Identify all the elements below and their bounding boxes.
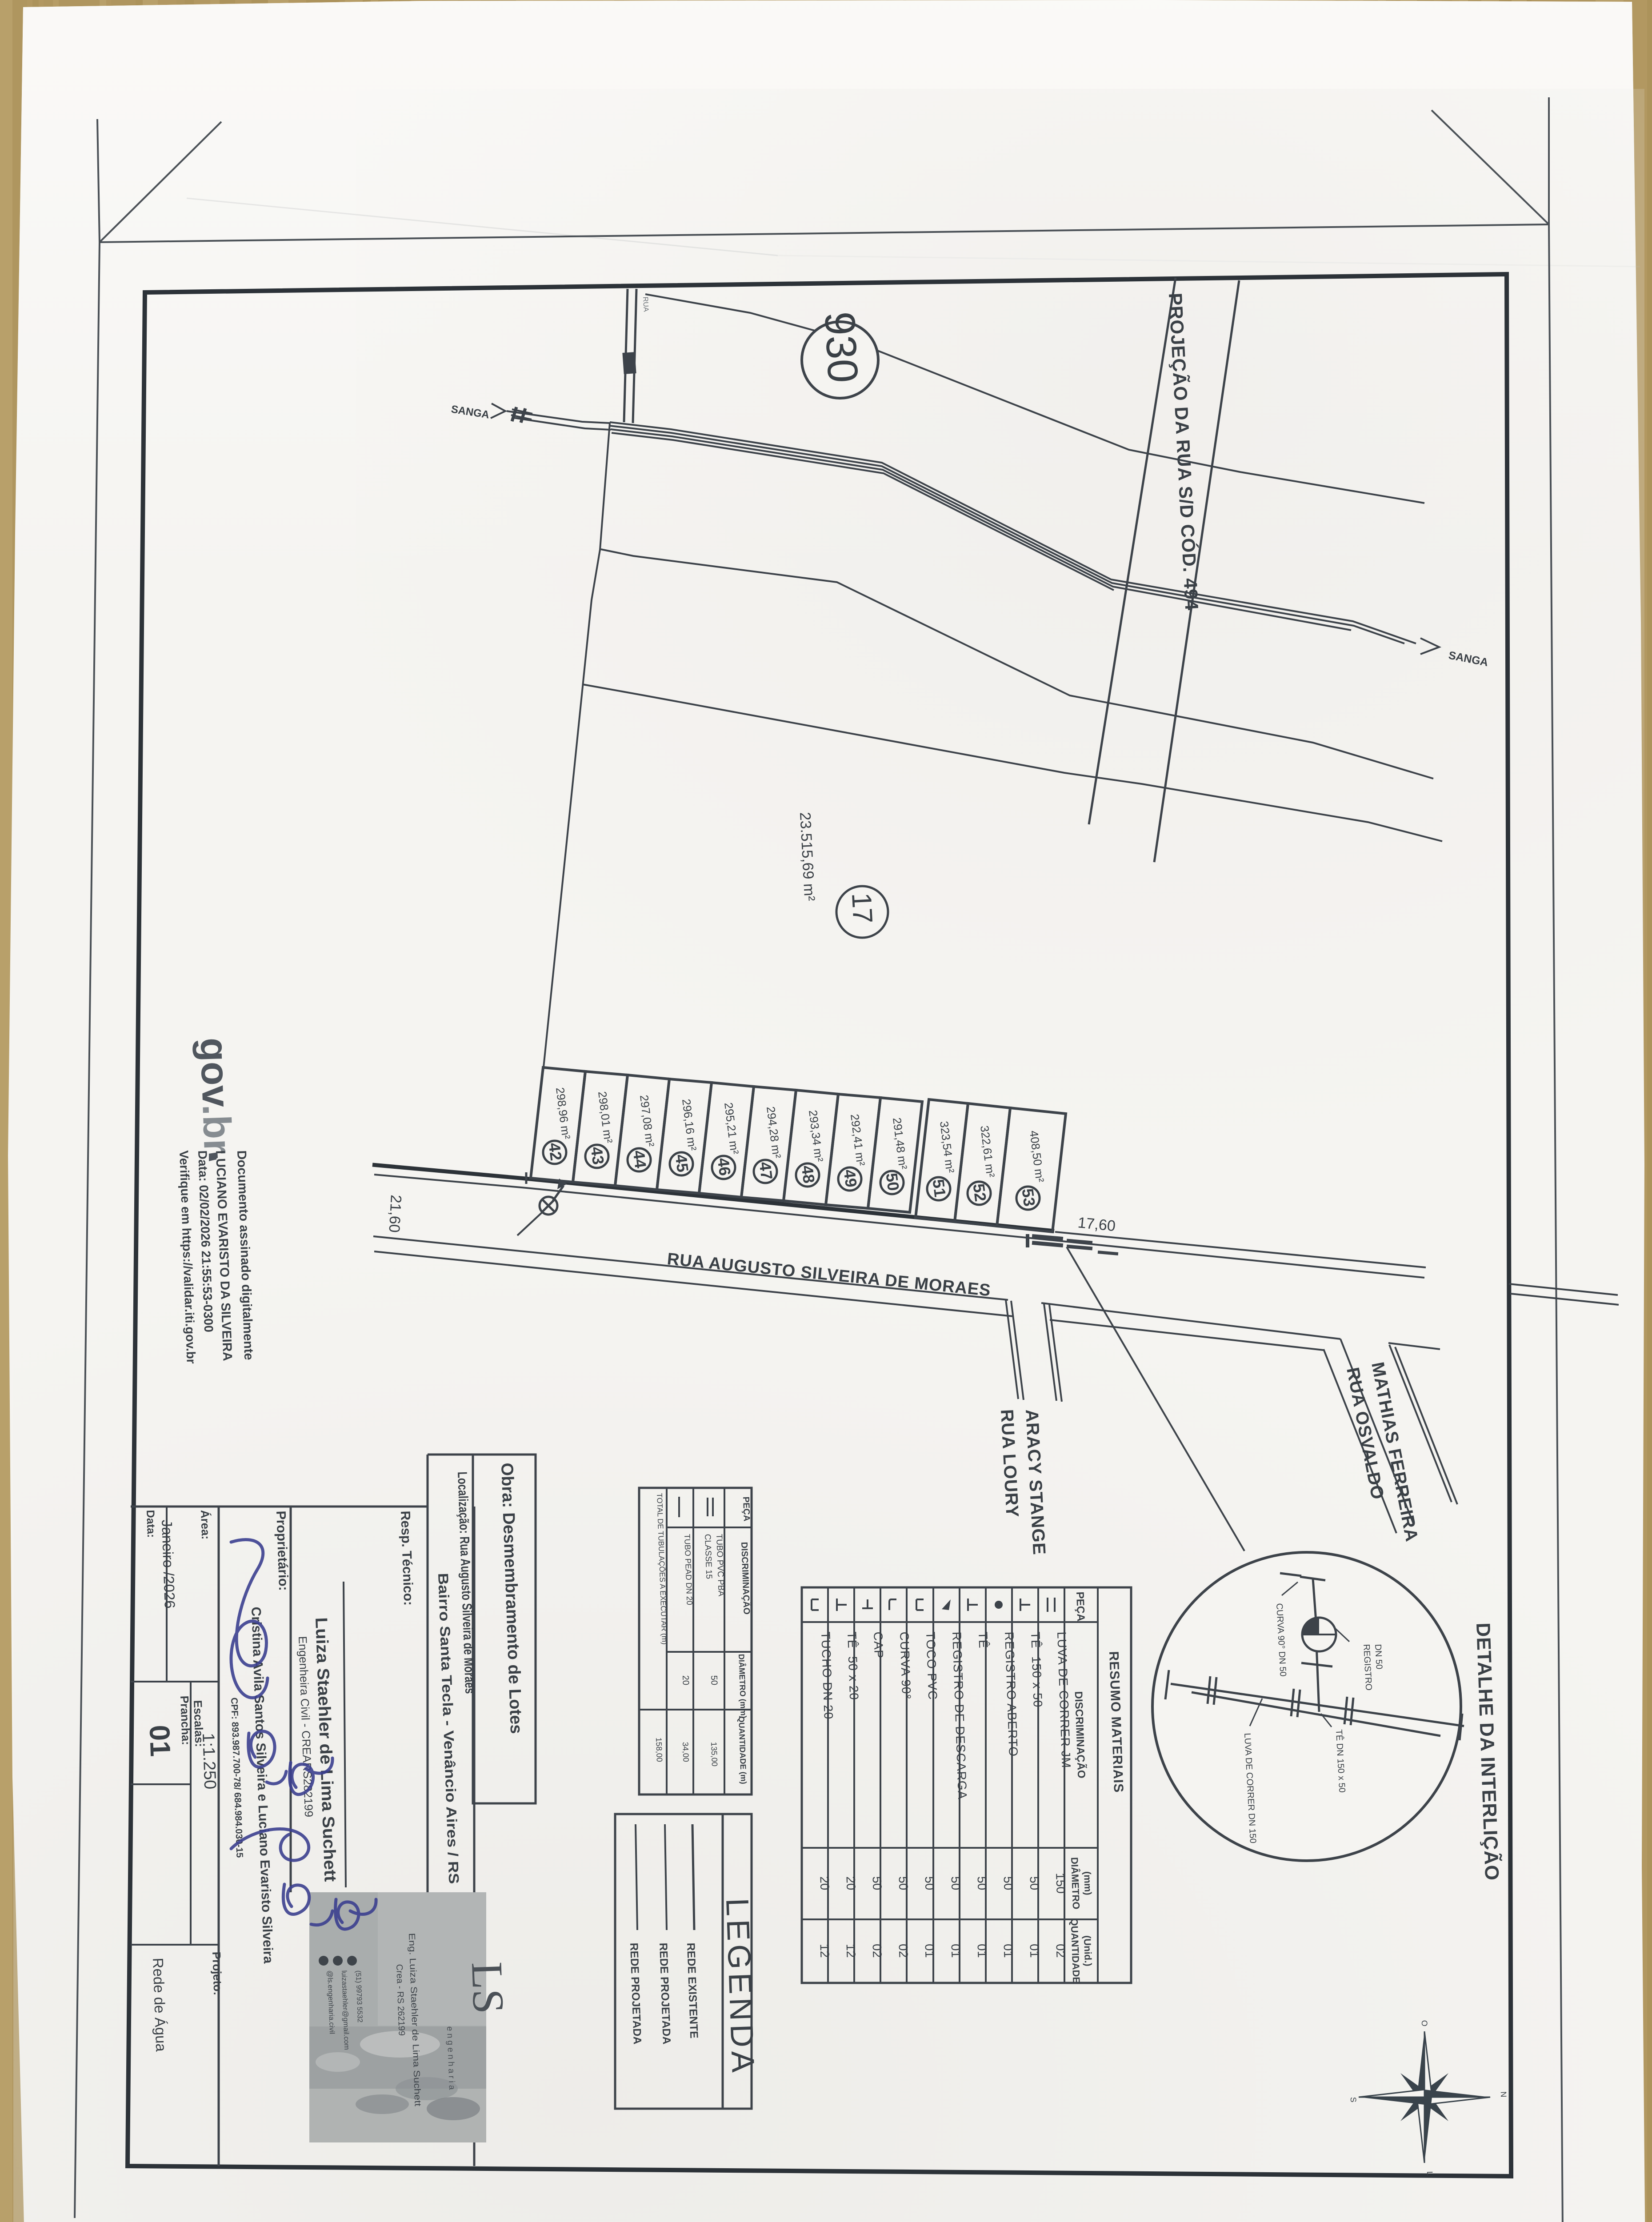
- svg-text:CURVA 90°: CURVA 90°: [897, 1631, 913, 1700]
- svg-text:Rede de Água: Rede de Água: [150, 1958, 169, 2052]
- svg-text:(Unid.): (Unid.): [1082, 1935, 1094, 1966]
- svg-text:PEÇA: PEÇA: [1074, 1591, 1087, 1622]
- svg-text:50: 50: [1001, 1876, 1015, 1890]
- svg-text:50: 50: [975, 1876, 989, 1890]
- svg-text:50: 50: [1027, 1876, 1041, 1890]
- svg-text:52: 52: [970, 1183, 990, 1203]
- svg-text:Projeto:: Projeto:: [210, 1951, 224, 1995]
- svg-text:20: 20: [817, 1876, 832, 1890]
- svg-text:50: 50: [709, 1675, 719, 1685]
- svg-text:43: 43: [588, 1146, 608, 1166]
- svg-text:150: 150: [1053, 1873, 1068, 1894]
- svg-text:TOCO PVC: TOCO PVC: [924, 1631, 940, 1700]
- svg-text:DIÂMETRO: DIÂMETRO: [1069, 1857, 1082, 1910]
- svg-text:TÊ: TÊ: [976, 1631, 990, 1649]
- svg-text:Data:: Data:: [144, 1510, 157, 1538]
- svg-text:50: 50: [883, 1172, 903, 1192]
- svg-text:01: 01: [1027, 1944, 1041, 1958]
- svg-text:02: 02: [1053, 1944, 1068, 1958]
- svg-text:gov.br: gov.br: [192, 1037, 240, 1155]
- svg-text:01: 01: [144, 1724, 176, 1757]
- svg-text:LS: LS: [462, 1961, 513, 2015]
- svg-text:51: 51: [929, 1178, 950, 1198]
- svg-text:TÊ 150 x 50: TÊ 150 x 50: [1028, 1631, 1045, 1708]
- svg-text:CAP: CAP: [871, 1631, 886, 1659]
- svg-text:20: 20: [680, 1675, 691, 1685]
- svg-text:02: 02: [870, 1944, 884, 1958]
- svg-text:N: N: [1499, 2091, 1508, 2098]
- svg-text:20: 20: [844, 1876, 858, 1890]
- svg-text:S: S: [1349, 2097, 1358, 2102]
- svg-text:34,00: 34,00: [681, 1742, 691, 1762]
- svg-text:50: 50: [948, 1876, 963, 1890]
- svg-text:158,00: 158,00: [654, 1737, 664, 1762]
- svg-text:12: 12: [844, 1944, 858, 1958]
- svg-text:TÊ 50 x 20: TÊ 50 x 20: [845, 1631, 861, 1700]
- svg-text:QUANTIDADE: QUANTIDADE: [1068, 1918, 1082, 1983]
- svg-text:49: 49: [840, 1168, 861, 1188]
- svg-text:50: 50: [922, 1876, 936, 1890]
- svg-text:01: 01: [975, 1944, 989, 1958]
- svg-text:12: 12: [817, 1944, 832, 1958]
- svg-text:45: 45: [672, 1153, 692, 1173]
- svg-text:CLASSE 15: CLASSE 15: [703, 1534, 714, 1579]
- svg-text:01: 01: [948, 1944, 963, 1958]
- svg-text:47: 47: [756, 1161, 776, 1181]
- svg-text:50: 50: [896, 1876, 910, 1890]
- svg-text:DN 50: DN 50: [1373, 1644, 1384, 1670]
- svg-text:O: O: [1420, 2020, 1429, 2026]
- svg-text:21,60: 21,60: [386, 1195, 404, 1233]
- svg-text:L: L: [1425, 2171, 1434, 2176]
- svg-text:930: 930: [816, 310, 867, 384]
- svg-text:Área:: Área:: [198, 1510, 212, 1539]
- svg-text:(mm): (mm): [1082, 1871, 1094, 1895]
- svg-text:42: 42: [545, 1142, 566, 1162]
- svg-text:50: 50: [870, 1876, 884, 1890]
- svg-text:01: 01: [922, 1944, 936, 1958]
- svg-text:01: 01: [1001, 1944, 1015, 1958]
- svg-text:Proprietário:: Proprietário:: [273, 1511, 291, 1591]
- svg-text:RUA: RUA: [641, 296, 650, 312]
- svg-text:46: 46: [714, 1157, 735, 1177]
- svg-text:17: 17: [846, 892, 878, 924]
- svg-text:02: 02: [896, 1944, 910, 1958]
- svg-text:135,00: 135,00: [709, 1742, 719, 1766]
- svg-text:Prancha:: Prancha:: [178, 1695, 193, 1745]
- svg-text:48: 48: [798, 1164, 819, 1184]
- svg-text:LEGENDA: LEGENDA: [719, 1898, 761, 2077]
- svg-text:44: 44: [630, 1149, 650, 1169]
- svg-text:1:1.250: 1:1.250: [199, 1733, 219, 1790]
- svg-text:Janeiro /2026: Janeiro /2026: [159, 1519, 178, 1609]
- svg-text:PEÇA: PEÇA: [741, 1496, 752, 1521]
- svg-text:53: 53: [1019, 1187, 1039, 1207]
